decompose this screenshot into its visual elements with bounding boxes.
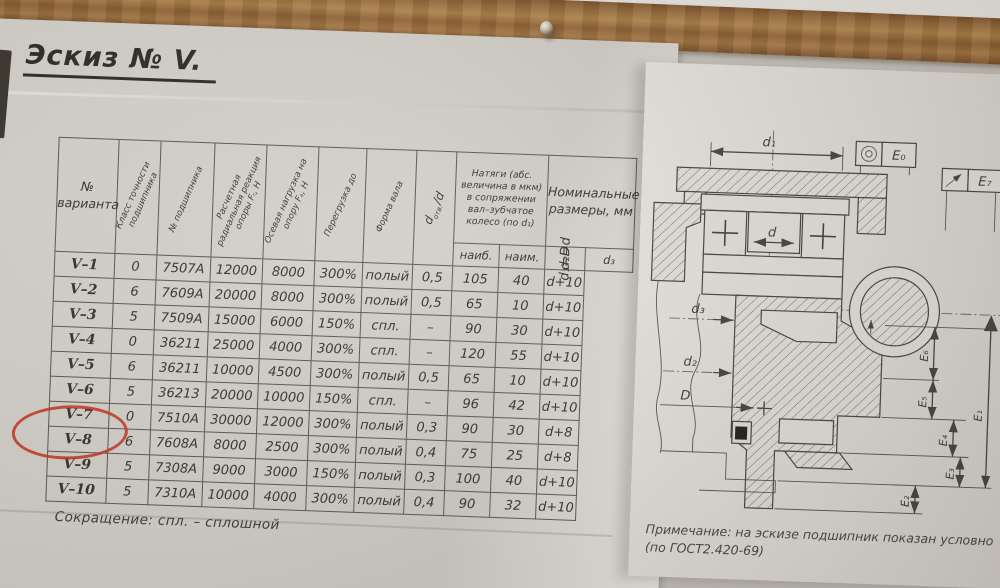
d2-label: d₂ [683, 354, 697, 369]
variant-cell: V–5 [50, 351, 111, 378]
header-naim: наим. [499, 245, 546, 270]
cell: d+10 [536, 494, 577, 520]
header-d3: d₃ [585, 248, 634, 273]
cell: 5 [106, 478, 149, 505]
tolerance-frame-e7: E₇ [940, 168, 1000, 232]
variant-cell: V–6 [50, 376, 111, 403]
cell: d+10 [543, 294, 584, 320]
cell: 10000 [206, 357, 259, 384]
cell: 90 [450, 316, 497, 343]
header-axial-load: Осевая нагрузка на опору Fₐ, Н [263, 145, 319, 261]
cell: 300% [307, 436, 356, 463]
break-line [688, 294, 702, 452]
cell: d+8 [538, 419, 579, 445]
cell: 300% [313, 286, 362, 313]
cell: 0,5 [412, 264, 453, 290]
header-radial-load: Расчетная радиальная реакция опоры Fᵣ, Н [211, 143, 267, 259]
header-overload: Перегрузка до [315, 147, 367, 263]
cell: 0,3 [405, 464, 446, 490]
header-group-nominal: Номинальные размеры, мм [546, 155, 637, 249]
cell: 96 [447, 391, 494, 418]
cell: 300% [314, 261, 363, 288]
cell: спл. [357, 387, 408, 414]
cell: 7510А [151, 405, 206, 432]
break-line-2 [651, 281, 667, 453]
cell: 30 [496, 317, 543, 344]
cell: полый [358, 362, 409, 389]
variant-cell: V–1 [54, 251, 115, 278]
cell: полый [355, 437, 406, 464]
drawing-sheet: d₁ E₀ E₇ [628, 62, 1000, 588]
cell: 7507А [156, 255, 211, 282]
cell: 300% [308, 411, 357, 438]
cell: – [410, 314, 451, 340]
cell: 100 [444, 466, 491, 493]
d3-label: d₃ [691, 302, 705, 317]
cell: d+10 [540, 369, 581, 395]
cell: 0,3 [406, 414, 447, 440]
cell: 65 [451, 291, 498, 318]
cell: 32 [490, 492, 537, 519]
cell: d+10 [539, 394, 580, 420]
pushpin [540, 21, 553, 36]
cell: 150% [312, 311, 361, 338]
page-title: Эскиз № V. [23, 39, 217, 83]
cell: 8000 [204, 432, 257, 459]
e0-label: E₀ [892, 149, 907, 164]
variant-cell: V–4 [51, 326, 112, 353]
cell: спл. [359, 337, 410, 364]
variant-cell: V–2 [53, 276, 114, 303]
cell: 6 [113, 278, 156, 305]
cell: 36211 [153, 330, 208, 357]
cell: 150% [309, 386, 358, 413]
cell: 7308А [149, 455, 204, 482]
cell: d+8 [537, 444, 578, 470]
cell: 12000 [256, 409, 309, 436]
cell: 40 [498, 267, 545, 294]
cell: d+10 [542, 319, 583, 345]
cell: 0,4 [404, 489, 445, 515]
cell: спл. [360, 312, 411, 339]
variant-cell: V–10 [46, 476, 107, 503]
cell: 20000 [205, 382, 258, 409]
e1-arrowhead [984, 315, 999, 331]
cell: 7609А [155, 280, 210, 307]
variants-table-wrap: № варианта Класс точности подшипника № п… [45, 137, 637, 523]
tolerance-frame-e0: E₀ [855, 141, 916, 175]
cell: 150% [307, 461, 356, 488]
cell: 30000 [204, 407, 257, 434]
gasket [784, 451, 853, 469]
cell: 4000 [254, 484, 307, 511]
merged-d2-d1-cell: d₂=d d₁=D [545, 246, 586, 270]
cell: 300% [311, 336, 360, 363]
cell: 4000 [259, 334, 312, 361]
cell: 3000 [255, 459, 308, 486]
cell: полый [354, 487, 405, 514]
cell: 42 [493, 392, 540, 419]
photo-of-pinned-sketch: Эскиз № V. № варианта Класс точности под… [0, 0, 1000, 588]
d-label: d [768, 225, 778, 240]
housing-left-wall [651, 202, 701, 282]
cell: 30 [492, 417, 539, 444]
e3-label: E₃ [944, 467, 957, 479]
e5-label: E₅ [916, 396, 929, 408]
cell: 4500 [258, 359, 311, 386]
cell: 7509А [154, 305, 209, 332]
cell: 36211 [152, 355, 207, 382]
cell: 0,4 [405, 439, 446, 465]
header-naib: наиб. [453, 243, 500, 268]
cell: 65 [448, 366, 495, 393]
cell: 7310А [148, 480, 203, 507]
cell: 0 [114, 253, 157, 280]
cell: 36213 [151, 380, 206, 407]
bearing-assembly-drawing: d₁ E₀ E₇ [632, 74, 1000, 533]
cell: 9000 [203, 457, 256, 484]
cell: 6000 [260, 309, 313, 336]
cell: 2500 [256, 434, 309, 461]
cell: 300% [306, 486, 355, 513]
cell: 10000 [202, 482, 255, 509]
cell: полый [362, 263, 413, 290]
cell: полый [356, 412, 407, 439]
cell: d+10 [541, 344, 582, 370]
cell: 105 [452, 266, 499, 293]
cell: 90 [444, 491, 491, 518]
e7-label: E₇ [978, 175, 993, 190]
cell: 5 [109, 378, 152, 405]
cell: 20000 [209, 282, 262, 309]
e6-label: E₆ [918, 349, 931, 361]
cell: 55 [495, 342, 542, 369]
cell: 120 [449, 341, 496, 368]
variant-cell: V–3 [52, 301, 113, 328]
footnote: Сокращение: спл. – сплошной [54, 509, 280, 533]
cell: – [409, 339, 450, 365]
cell: – [407, 389, 448, 415]
e4-label: E₄ [937, 434, 950, 446]
merged-lower-label: d₁=D [557, 246, 573, 281]
cell: 15000 [208, 307, 261, 334]
cell: 10 [497, 292, 544, 319]
cell: d+10 [536, 469, 577, 495]
e2-label: E₂ [899, 495, 912, 507]
cell: 6 [110, 353, 153, 380]
cell: 90 [446, 416, 493, 443]
d1-dimension-line [711, 151, 843, 156]
header-group-natyag: Натяги (абс. величина в мкм) в сопряжени… [454, 152, 549, 246]
cell: 40 [490, 467, 537, 494]
cell: 300% [310, 361, 359, 388]
cell: 8000 [262, 259, 315, 286]
cell: 75 [445, 441, 492, 468]
cell: 0,5 [408, 364, 449, 390]
cell: 0 [111, 328, 154, 355]
header-dotv-d: dотв./d [413, 150, 457, 265]
header-accuracy: Класс точности подшипника [115, 139, 161, 254]
D-label: D [680, 388, 691, 403]
cell: 10000 [257, 384, 310, 411]
cell: 0,5 [411, 289, 452, 315]
table-sheet: Эскиз № V. № варианта Класс точности под… [0, 18, 679, 588]
cell: 5 [107, 453, 150, 480]
cell: 25000 [207, 332, 260, 359]
cell: 12000 [210, 257, 263, 284]
cell: полый [361, 287, 412, 314]
cell: 5 [112, 303, 155, 330]
cell: 7608А [150, 430, 205, 457]
e1-label: E₁ [972, 410, 985, 422]
cell: 8000 [261, 284, 314, 311]
cell: полый [355, 462, 406, 489]
cell: 10 [494, 367, 541, 394]
variants-table: № варианта Класс точности подшипника № п… [45, 137, 637, 523]
seal [735, 426, 747, 439]
cell: 25 [491, 442, 538, 469]
d1-label: d₁ [762, 135, 776, 150]
bearing: d [698, 194, 849, 299]
